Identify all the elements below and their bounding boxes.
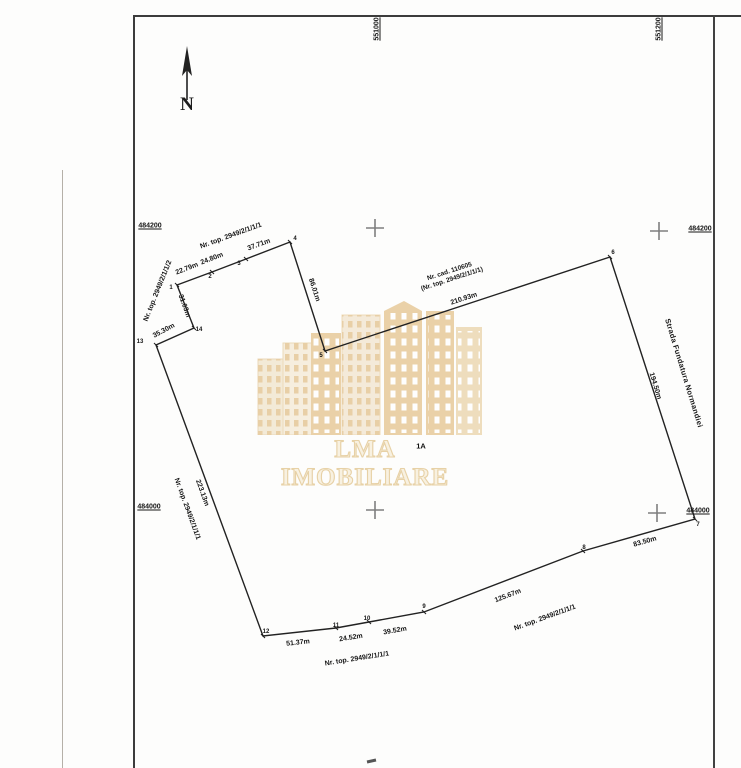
grid-coordinate-label: 551200: [656, 17, 663, 40]
lot-number-label: 1A: [416, 442, 426, 451]
vertex-number-label: 7: [696, 522, 699, 528]
vertex-number-label: 5: [319, 353, 322, 359]
vertex-number-label: 12: [263, 629, 270, 635]
vertex-number-label: 4: [293, 236, 296, 242]
vertex-number-label: 14: [196, 327, 203, 333]
cadastral-plan-canvas: N LMA IMOBILIARE Nr. cad. 110605: [0, 0, 741, 768]
vertex-number-label: 1: [169, 285, 172, 291]
vertex-number-label: 8: [582, 545, 585, 551]
grid-coordinate-label: 484000: [686, 508, 709, 515]
vertex-number-label: 11: [333, 623, 339, 629]
vertex-number-label: 10: [364, 616, 371, 622]
vertex-number-label: 9: [422, 604, 425, 610]
vertex-number-label: 13: [137, 339, 144, 345]
grid-coordinate-label: 484200: [138, 223, 161, 230]
grid-coordinate-label: 551000: [374, 17, 381, 40]
vertex-number-label: 6: [611, 250, 614, 256]
grid-coordinate-label: 484000: [137, 504, 160, 511]
vertex-number-label: 3: [237, 261, 240, 267]
vertex-number-label: 2: [208, 274, 211, 280]
parcel-boundary-polygon: [156, 242, 695, 636]
grid-coordinate-label: 484200: [688, 226, 711, 233]
